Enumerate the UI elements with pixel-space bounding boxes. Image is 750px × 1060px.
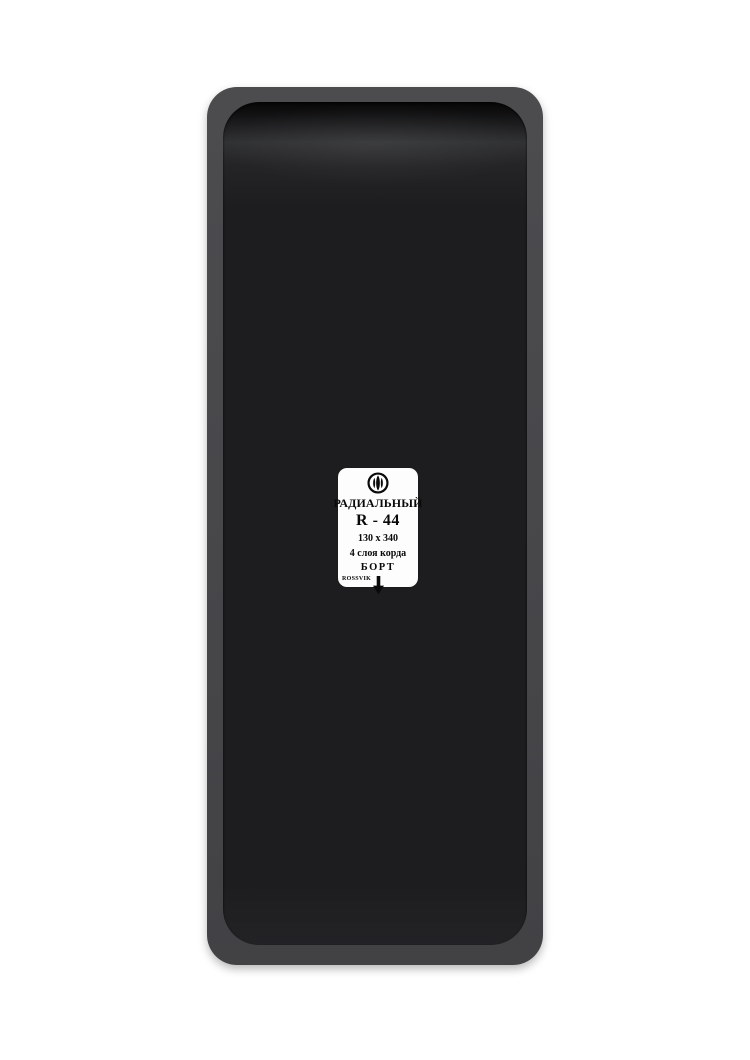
patch-size-label: 130 x 340 <box>358 534 398 544</box>
bead-direction-label: БОРТ <box>361 563 396 574</box>
patch-type-label: РАДИАЛЬНЫЙ <box>333 497 422 509</box>
down-arrow-icon <box>372 576 385 595</box>
rossvik-logo-icon <box>367 472 389 494</box>
product-label: РАДИАЛЬНЫЙ R - 44 130 x 340 4 слоя корда… <box>338 468 418 587</box>
patch-plies-label: 4 слоя корда <box>350 549 406 559</box>
product-photo: РАДИАЛЬНЫЙ R - 44 130 x 340 4 слоя корда… <box>0 0 750 1060</box>
tire-patch: РАДИАЛЬНЫЙ R - 44 130 x 340 4 слоя корда… <box>207 87 543 965</box>
patch-model-label: R - 44 <box>356 513 400 529</box>
brand-name-label: ROSSVIK <box>342 576 371 582</box>
